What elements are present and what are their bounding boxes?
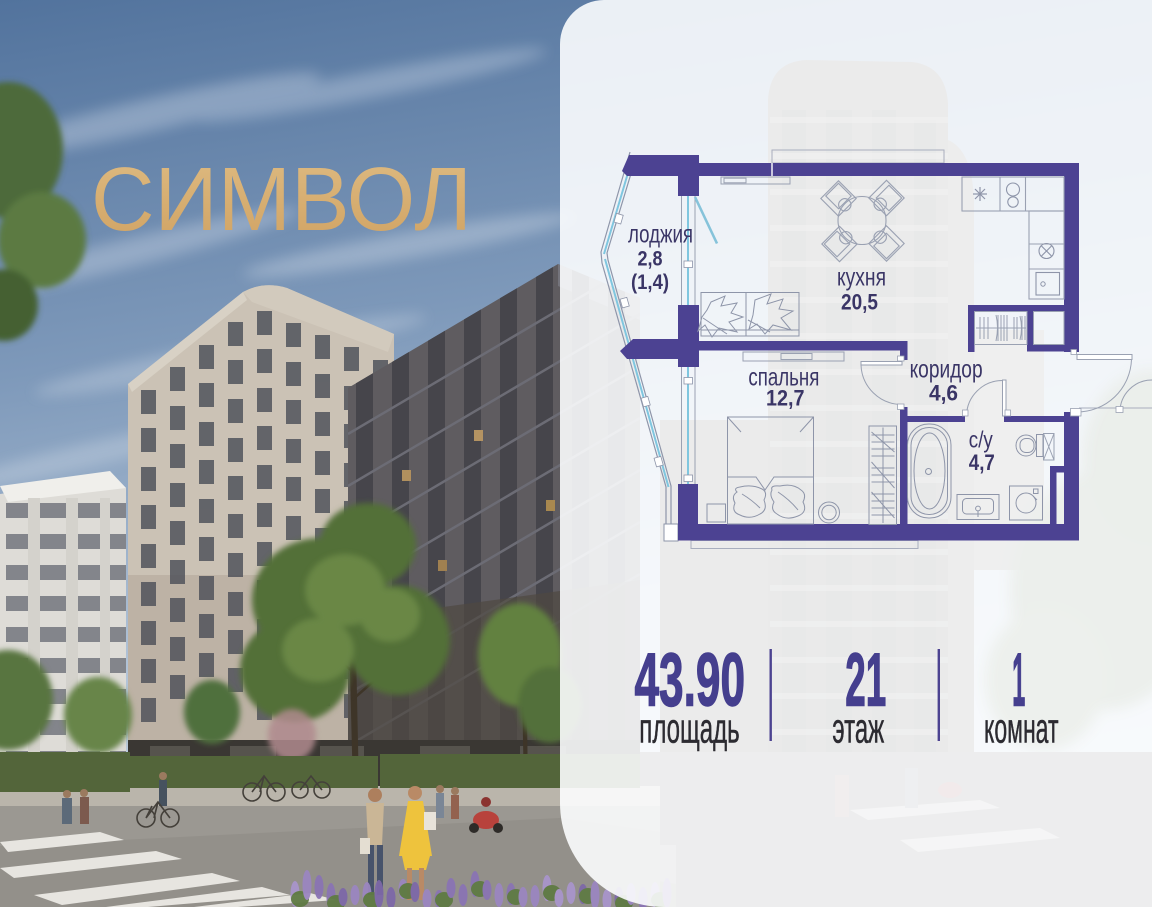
svg-text:4,6: 4,6 — [929, 381, 958, 406]
svg-text:20,5: 20,5 — [841, 290, 878, 315]
svg-text:(1,4): (1,4) — [631, 271, 669, 294]
svg-text:этаж: этаж — [832, 705, 884, 752]
svg-text:коридор: коридор — [910, 356, 983, 384]
svg-text:12,7: 12,7 — [766, 386, 805, 411]
svg-text:комнат: комнат — [984, 705, 1059, 752]
svg-text:СИМВОЛ: СИМВОЛ — [91, 150, 472, 250]
svg-text:с/у: с/у — [969, 427, 993, 453]
svg-text:кухня: кухня — [837, 264, 886, 292]
svg-text:площадь: площадь — [639, 705, 739, 752]
svg-text:2,8: 2,8 — [638, 248, 663, 271]
svg-text:4,7: 4,7 — [969, 450, 995, 475]
svg-text:лоджия: лоджия — [628, 221, 693, 249]
